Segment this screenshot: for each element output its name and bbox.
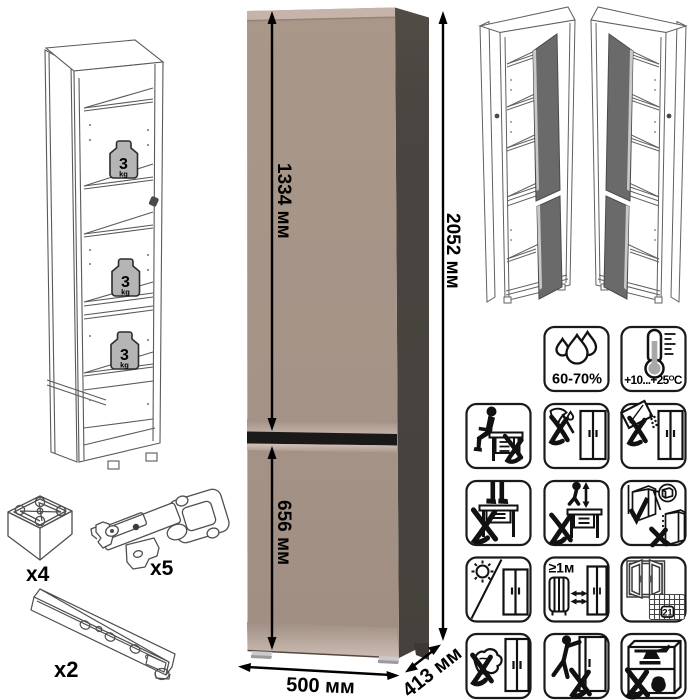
svg-text:60-70%: 60-70%	[552, 372, 602, 388]
svg-text:+10...+25OC: +10...+25OC	[624, 373, 683, 387]
svg-text:kg: kg	[119, 170, 128, 179]
svg-text:x4: x4	[26, 563, 50, 586]
svg-text:kg: kg	[121, 288, 130, 297]
svg-text:656 мм: 656 мм	[273, 500, 294, 565]
svg-text:≥1м: ≥1м	[549, 560, 575, 576]
svg-text:2052 мм: 2052 мм	[442, 213, 463, 289]
svg-text:500 мм: 500 мм	[286, 674, 355, 698]
svg-text:21: 21	[662, 607, 672, 617]
svg-text:kg: kg	[120, 361, 129, 370]
svg-text:x2: x2	[54, 657, 78, 682]
svg-text:1334 мм: 1334 мм	[273, 163, 294, 239]
svg-text:x5: x5	[150, 557, 174, 580]
